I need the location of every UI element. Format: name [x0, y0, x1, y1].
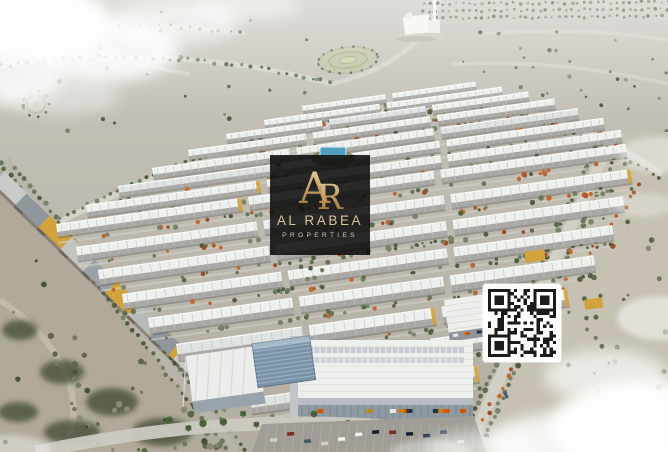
qr-module	[501, 299, 504, 302]
desert-tree	[584, 316, 588, 320]
qr-module	[537, 312, 540, 315]
storefront-sign	[433, 409, 439, 413]
qr-module	[553, 305, 556, 308]
desert-tree	[622, 298, 625, 301]
boulevard-tree	[176, 384, 180, 388]
qr-module	[501, 347, 504, 350]
qr-module	[514, 318, 517, 321]
qr-module	[530, 351, 533, 354]
qr-module	[530, 328, 533, 331]
qr-module	[494, 295, 497, 298]
qr-module	[533, 351, 536, 354]
qr-module	[514, 308, 517, 311]
storefront-sign	[444, 409, 450, 413]
shrub	[70, 402, 73, 405]
desert-tree	[649, 237, 655, 243]
storefront-sign	[390, 409, 396, 413]
qr-module	[491, 308, 494, 311]
qr-module	[520, 295, 523, 298]
qr-module	[550, 334, 553, 337]
qr-module	[514, 289, 517, 292]
boulevard-tree	[121, 316, 126, 321]
qr-module	[514, 351, 517, 354]
shrub	[201, 438, 207, 444]
shrub	[100, 405, 103, 408]
qr-module	[546, 312, 549, 315]
qr-module	[520, 344, 523, 347]
qr-module	[533, 315, 536, 318]
qr-module	[498, 328, 501, 331]
qr-module	[550, 354, 553, 357]
qr-module	[527, 308, 530, 311]
qr-module	[498, 341, 501, 344]
park-tree	[305, 277, 310, 282]
qr-module	[507, 351, 510, 354]
flowering-tree	[497, 394, 502, 399]
qr-module	[507, 308, 510, 311]
boulevard-tree	[1, 167, 6, 172]
qr-module	[498, 325, 501, 328]
qr-module	[511, 292, 514, 295]
qr-module	[494, 334, 497, 337]
desert-tree	[113, 121, 116, 124]
storefront-sign	[366, 409, 372, 413]
qr-module	[543, 347, 546, 350]
shrub	[15, 376, 20, 381]
qr-module	[507, 305, 510, 308]
qr-module	[530, 308, 533, 311]
tree	[183, 160, 187, 164]
qr-module	[543, 312, 546, 315]
qr-module	[553, 334, 556, 337]
tree	[502, 396, 506, 400]
car	[372, 430, 379, 434]
qr-module	[520, 308, 523, 311]
boulevard-tree	[125, 321, 129, 325]
qr-module	[507, 354, 510, 357]
qr-module	[498, 299, 501, 302]
qr-module	[537, 331, 540, 334]
car	[287, 432, 294, 436]
qr-module	[501, 318, 504, 321]
qr-module	[553, 315, 556, 318]
car	[423, 434, 430, 438]
qr-module	[543, 338, 546, 341]
qr-module	[501, 334, 504, 337]
qr-module	[494, 354, 497, 357]
flowering-tree	[507, 373, 512, 378]
shrub	[182, 441, 187, 446]
shrub	[81, 370, 83, 372]
shrub	[48, 333, 54, 339]
qr-module	[517, 312, 520, 315]
aerial-listing-photo: A R AL RABEA PROPERTIES	[0, 0, 668, 452]
shrub	[124, 406, 130, 412]
qr-module	[524, 299, 527, 302]
qr-module	[507, 299, 510, 302]
qr-module	[553, 295, 556, 298]
desert-tree	[657, 276, 662, 281]
qr-module	[488, 347, 491, 350]
shrub	[76, 383, 81, 388]
tree	[484, 382, 488, 386]
desert-tree	[594, 336, 598, 340]
qr-module	[537, 328, 540, 331]
shrub	[52, 351, 57, 356]
shrub	[85, 425, 89, 429]
tree	[496, 401, 500, 405]
tree	[652, 173, 655, 176]
qr-module	[553, 299, 556, 302]
qr-module	[514, 315, 517, 318]
qr-module	[491, 334, 494, 337]
clerestory	[298, 398, 473, 405]
qr-module	[537, 289, 540, 292]
shrub	[138, 359, 144, 365]
qr-module	[501, 325, 504, 328]
shrub	[79, 375, 83, 379]
shrub	[214, 448, 217, 451]
qr-module	[533, 344, 536, 347]
shrub	[174, 447, 177, 450]
qr-module	[494, 328, 497, 331]
park-tree	[320, 268, 324, 272]
park-tree	[309, 260, 313, 264]
qr-module	[533, 338, 536, 341]
shrub	[137, 448, 140, 451]
qr-module	[507, 347, 510, 350]
qr-module	[488, 289, 491, 292]
desert-tree	[593, 315, 598, 320]
qr-module	[501, 295, 504, 298]
boulevard-tree	[219, 438, 224, 443]
qr-module	[550, 331, 553, 334]
shrub	[140, 391, 143, 394]
qr-module	[488, 292, 491, 295]
cloud	[544, 350, 668, 402]
tree	[86, 202, 89, 205]
shrub	[72, 370, 77, 375]
qr-module	[537, 318, 540, 321]
qr-module	[527, 328, 530, 331]
tree	[103, 196, 106, 199]
brand-monogram-icon: A R	[281, 160, 359, 212]
qr-module	[501, 302, 504, 305]
qr-module	[498, 334, 501, 337]
qr-module	[494, 341, 497, 344]
qr-module	[491, 289, 494, 292]
qr-module	[527, 351, 530, 354]
shrub	[215, 444, 218, 447]
watermark-logo: A R AL RABEA PROPERTIES	[270, 155, 370, 255]
qr-module	[543, 354, 546, 357]
tree	[512, 371, 516, 375]
qr-module	[543, 341, 546, 344]
qr-module	[514, 295, 517, 298]
shrub	[117, 407, 121, 411]
park-tree	[311, 256, 316, 261]
qr-module	[530, 302, 533, 305]
qr-module	[524, 334, 527, 337]
qr-module	[540, 331, 543, 334]
brand-name: AL RABEA	[277, 213, 363, 228]
qr-module	[530, 312, 533, 315]
qr-module	[520, 347, 523, 350]
qr-module	[494, 289, 497, 292]
qr-module	[488, 341, 491, 344]
tree	[72, 210, 76, 214]
flowering-tree	[501, 387, 504, 390]
qr-module	[488, 334, 491, 337]
qr-module	[517, 321, 520, 324]
tree	[555, 227, 561, 233]
cloud	[0, 75, 120, 115]
qr-module	[524, 321, 527, 324]
boulevard-tree	[18, 172, 22, 176]
flowering-tree	[637, 182, 641, 186]
qr-module	[553, 292, 556, 295]
qr-module	[498, 289, 501, 292]
boulevard-tree	[223, 446, 228, 451]
qr-module	[546, 354, 549, 357]
qr-module	[488, 308, 491, 311]
shrub	[72, 335, 77, 340]
tree	[144, 175, 148, 179]
qr-module	[501, 308, 504, 311]
qr-module	[501, 344, 504, 347]
qr-module	[524, 328, 527, 331]
tree	[494, 362, 500, 368]
tree	[506, 383, 510, 387]
boulevard-tree	[170, 378, 173, 381]
monogram-letter-r: R	[317, 178, 344, 212]
qr-module	[488, 344, 491, 347]
tree	[476, 400, 481, 405]
qr-module	[507, 334, 510, 337]
shrub	[96, 422, 100, 426]
qr-module	[511, 302, 514, 305]
qr-module	[501, 354, 504, 357]
boulevard-tree	[32, 189, 37, 194]
qr-module	[488, 295, 491, 298]
tree	[493, 415, 497, 419]
qr-module	[507, 328, 510, 331]
park-tree	[308, 266, 313, 271]
qr-module	[546, 302, 549, 305]
shrub	[72, 361, 78, 367]
qr-module	[504, 312, 507, 315]
qr-module	[504, 289, 507, 292]
tree	[95, 199, 100, 204]
qr-module	[543, 289, 546, 292]
qr-module	[537, 308, 540, 311]
qr-module	[540, 318, 543, 321]
boulevard-tree	[43, 200, 48, 205]
qr-module	[533, 308, 536, 311]
qr-module	[533, 289, 536, 292]
car	[321, 442, 328, 446]
boulevard-tree	[27, 183, 32, 188]
qr-module	[511, 351, 514, 354]
tree	[608, 167, 612, 171]
qr-module	[530, 321, 533, 324]
qr-module	[494, 331, 497, 334]
shrub	[41, 282, 47, 288]
glass-building	[252, 336, 316, 388]
qr-module	[498, 354, 501, 357]
qr-module	[546, 295, 549, 298]
qr-module	[514, 341, 517, 344]
qr-module	[546, 341, 549, 344]
qr-module	[507, 331, 510, 334]
car	[338, 437, 345, 441]
tree	[489, 421, 493, 425]
desert-tree	[599, 344, 604, 349]
qr-module	[511, 331, 514, 334]
qr-module	[553, 351, 556, 354]
qr-module	[553, 312, 556, 315]
shrub	[181, 407, 188, 414]
qr-module	[517, 341, 520, 344]
qr-module	[533, 302, 536, 305]
qr-module	[488, 305, 491, 308]
qr-module	[550, 315, 553, 318]
qr-module	[524, 351, 527, 354]
tree	[109, 192, 113, 196]
qr-module	[507, 338, 510, 341]
qr-module	[504, 308, 507, 311]
qr-module	[540, 289, 543, 292]
qr-module	[488, 299, 491, 302]
flowering-tree	[589, 252, 592, 255]
qr-module	[546, 338, 549, 341]
car	[355, 432, 362, 436]
qr-module	[488, 325, 491, 328]
qr-module	[540, 344, 543, 347]
storefront-sign	[317, 409, 323, 413]
qr-module	[517, 299, 520, 302]
qr-module	[533, 354, 536, 357]
qr-module	[494, 344, 497, 347]
qr-module	[507, 341, 510, 344]
car	[389, 430, 396, 434]
qr-module	[507, 315, 510, 318]
desert-tree	[627, 294, 630, 297]
qr-module	[530, 338, 533, 341]
tree	[487, 375, 491, 379]
tree	[495, 408, 501, 414]
storefront-sign	[407, 409, 413, 413]
qr-module	[498, 318, 501, 321]
qr-module	[514, 305, 517, 308]
qr-module	[514, 347, 517, 350]
qr-module	[498, 321, 501, 324]
qr-module	[517, 315, 520, 318]
qr-module	[537, 321, 540, 324]
shrub	[84, 388, 90, 394]
qr-module	[491, 354, 494, 357]
qr-module	[494, 308, 497, 311]
qr-module	[540, 308, 543, 311]
qr-module	[543, 308, 546, 311]
qr-module	[533, 299, 536, 302]
boulevard-tree	[145, 346, 149, 350]
qr-module	[533, 341, 536, 344]
qr-module	[501, 321, 504, 324]
tree	[478, 394, 483, 399]
qr-module	[533, 334, 536, 337]
qr-module	[498, 308, 501, 311]
tree	[482, 387, 488, 393]
boulevard-tree	[161, 366, 165, 370]
qr-module	[488, 302, 491, 305]
qr-module	[540, 295, 543, 298]
boulevard-tree	[49, 210, 53, 214]
desert-tree	[614, 345, 619, 350]
boulevard-tree	[141, 341, 146, 346]
qr-module	[543, 302, 546, 305]
tree	[66, 213, 69, 216]
qr-module	[514, 331, 517, 334]
qr-module	[520, 334, 523, 337]
storefront-sign	[438, 409, 444, 413]
shrub	[111, 448, 115, 452]
qr-module	[533, 292, 536, 295]
qr-module	[514, 321, 517, 324]
qr-module	[540, 302, 543, 305]
qr-module	[488, 354, 491, 357]
qr-module	[504, 354, 507, 357]
qr-module	[553, 289, 556, 292]
shrub	[54, 362, 58, 366]
qr-module	[553, 308, 556, 311]
qr-module	[520, 331, 523, 334]
desert-tree	[625, 220, 630, 225]
qr-module	[543, 295, 546, 298]
qr-module	[540, 354, 543, 357]
tree	[581, 170, 585, 174]
car	[304, 439, 311, 443]
qr-module	[553, 302, 556, 305]
desert-tree	[646, 246, 652, 252]
tree	[515, 363, 521, 369]
qr-module	[494, 302, 497, 305]
qr-module	[550, 351, 553, 354]
car	[406, 432, 413, 436]
qr-module	[507, 302, 510, 305]
qr-module	[524, 289, 527, 292]
boulevard-tree	[136, 333, 140, 337]
shrub	[35, 259, 38, 262]
qr-pattern	[488, 289, 556, 357]
qr-module	[543, 351, 546, 354]
qr-module	[540, 312, 543, 315]
qr-module	[533, 295, 536, 298]
flowering-tree	[591, 245, 594, 248]
qr-module	[498, 295, 501, 298]
qr-module	[550, 338, 553, 341]
qr-module	[546, 344, 549, 347]
qr-module	[511, 321, 514, 324]
qr-module	[494, 312, 497, 315]
boulevard-tree	[234, 435, 238, 439]
shrub	[77, 415, 82, 420]
shrub	[131, 387, 135, 391]
flowering-tree	[487, 402, 491, 406]
boulevard-tree	[157, 358, 161, 362]
boulevard-tree	[130, 328, 135, 333]
flowering-tree	[481, 418, 484, 421]
